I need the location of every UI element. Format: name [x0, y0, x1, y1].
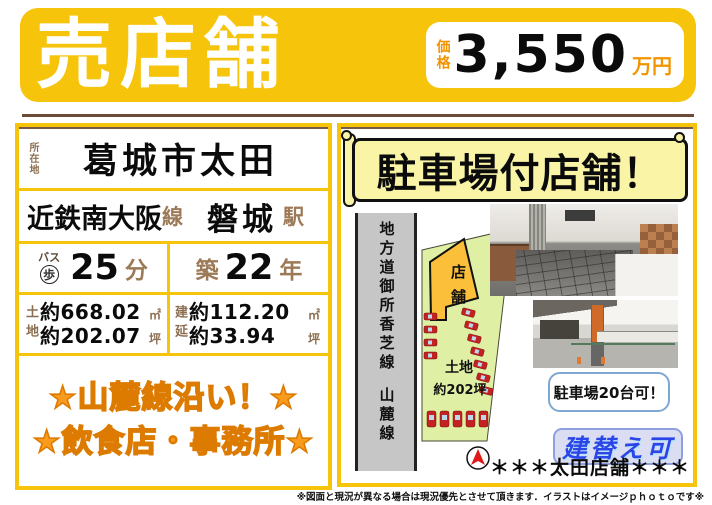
disclaimer-text: ※図面と現況が異なる場合は現況優先とさせて頂きます．イラストはイメージｐｈｏｔｏ… — [297, 489, 704, 503]
access-age-row: バス 歩 25 分 築 22 年 — [19, 244, 328, 292]
page-title: 売店舗 — [36, 17, 288, 93]
land-caption: 土地 — [437, 357, 481, 377]
white-counter — [615, 254, 678, 296]
headline-scroll-banner: 駐車場付店舗！ — [352, 138, 688, 202]
land-area-cell: 土地 約668.02 ㎡ 約202.07 坪 — [19, 295, 167, 353]
land-sqm: 約668.02 — [40, 301, 141, 323]
area-row: 土地 約668.02 ㎡ 約202.07 坪 建延 約11 — [19, 295, 328, 353]
land-label: 土地 — [24, 305, 37, 343]
sqm-unit: ㎡ — [149, 306, 161, 323]
building-area-values: 約112.20 ㎡ 約33.94 坪 — [189, 301, 324, 347]
land-area-values: 約668.02 ㎡ 約202.07 坪 — [40, 301, 165, 347]
building-area-cell: 建延 約112.20 ㎡ 約33.94 坪 — [170, 295, 328, 353]
building-label: 店舗 — [448, 264, 469, 314]
station-row: 近鉄南大阪 線 磐城 駅 — [19, 191, 328, 241]
location-value: 葛城市太田 — [39, 133, 322, 184]
bus-walk-label: バス 歩 — [38, 252, 60, 283]
interior-photo — [490, 204, 678, 296]
bus-label: バス — [38, 252, 60, 264]
land-size-caption: 約202坪 — [429, 379, 491, 398]
scroll-curl-icon — [674, 132, 685, 143]
built-years: 22 — [225, 251, 274, 286]
tsubo-unit: 坪 — [149, 330, 161, 347]
flyer-page: 売店舗 価格 3,550 万円 所在地 葛城市太田 近鉄南大阪 線 磐城 駅 バ… — [0, 0, 712, 505]
location-row: 所在地 葛城市太田 — [19, 129, 328, 188]
access-minutes: 25 — [70, 251, 119, 286]
catch-copy-area: ★山麓線沿い！★ ★飲食店・事務所★ — [19, 356, 328, 486]
map-photo-panel: 駐車場付店舗！ 地方道御所香芝線 山麓線 — [337, 123, 697, 487]
rail-line-suffix: 線 — [162, 201, 183, 231]
access-unit: 分 — [125, 251, 148, 285]
headline-text: 駐車場付店舗！ — [377, 141, 664, 199]
north-arrow-icon — [467, 447, 489, 469]
property-name: ＊＊＊太田店舗＊＊＊ — [487, 453, 693, 480]
property-spec-panel: 所在地 葛城市太田 近鉄南大阪 線 磐城 駅 バス 歩 25 分 築 22 — [15, 123, 332, 490]
road-name-2: 山麓線 — [379, 387, 394, 444]
traffic-cone — [601, 357, 605, 364]
price-value: 3,550 — [454, 29, 628, 81]
rail-line: 近鉄南大阪 — [27, 197, 162, 236]
parking-capacity-text: 駐車場20台可！ — [554, 382, 665, 403]
circled-walk-icon: 歩 — [40, 265, 59, 284]
traffic-cone — [577, 357, 581, 364]
title-banner: 売店舗 価格 3,550 万円 — [20, 8, 696, 102]
roof-edge — [533, 300, 617, 320]
sqm-unit: ㎡ — [308, 306, 320, 323]
catch-line-1: ★山麓線沿い！★ — [49, 381, 299, 417]
access-cell: バス 歩 25 分 — [19, 244, 167, 292]
catch-line-2: ★飲食店・事務所★ — [33, 425, 315, 461]
parking-photo — [533, 300, 678, 368]
location-label: 所在地 — [27, 142, 37, 175]
price-label: 価格 — [436, 39, 450, 71]
built-cell: 築 22 年 — [170, 244, 328, 292]
ceiling-vent — [565, 210, 595, 220]
shop-building — [540, 320, 579, 338]
divider-line — [22, 114, 694, 117]
parking-capacity-note: 駐車場20台可！ — [548, 372, 670, 412]
built-unit: 年 — [279, 251, 302, 285]
green-railing — [571, 343, 675, 345]
building-tsubo: 約33.94 — [189, 325, 275, 347]
price-unit: 万円 — [632, 50, 672, 79]
scroll-curl-icon — [341, 130, 352, 141]
white-wall — [597, 331, 678, 342]
road-strip: 地方道御所香芝線 山麓線 — [355, 213, 417, 471]
station-name: 磐城 — [207, 194, 277, 239]
land-tsubo: 約202.07 — [40, 325, 141, 347]
building-label: 建延 — [173, 305, 186, 343]
built-label: 築 — [196, 251, 219, 285]
station-suffix: 駅 — [283, 201, 304, 231]
road-name: 地方道御所香芝線 — [379, 221, 394, 373]
price-box: 価格 3,550 万円 — [426, 22, 684, 88]
building-sqm: 約112.20 — [189, 301, 290, 323]
tsubo-unit: 坪 — [308, 330, 320, 347]
panel-accent-line — [341, 127, 693, 129]
